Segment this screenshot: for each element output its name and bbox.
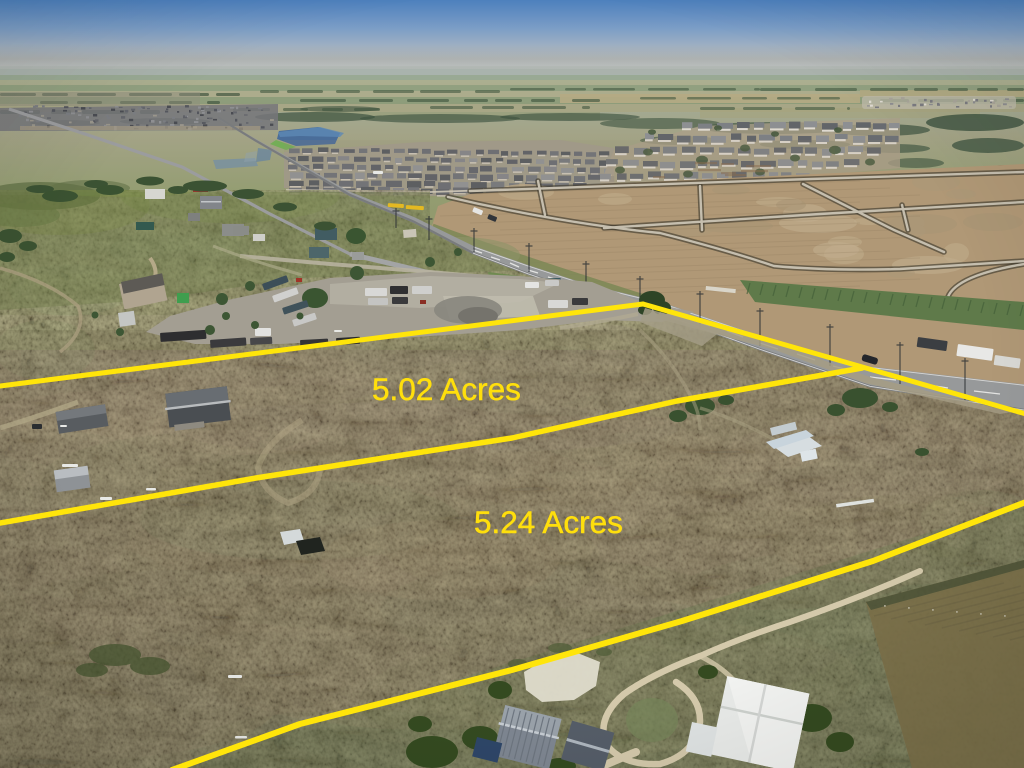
svg-text:5.24 Acres: 5.24 Acres xyxy=(474,504,623,540)
svg-text:5.02 Acres: 5.02 Acres xyxy=(372,371,521,407)
